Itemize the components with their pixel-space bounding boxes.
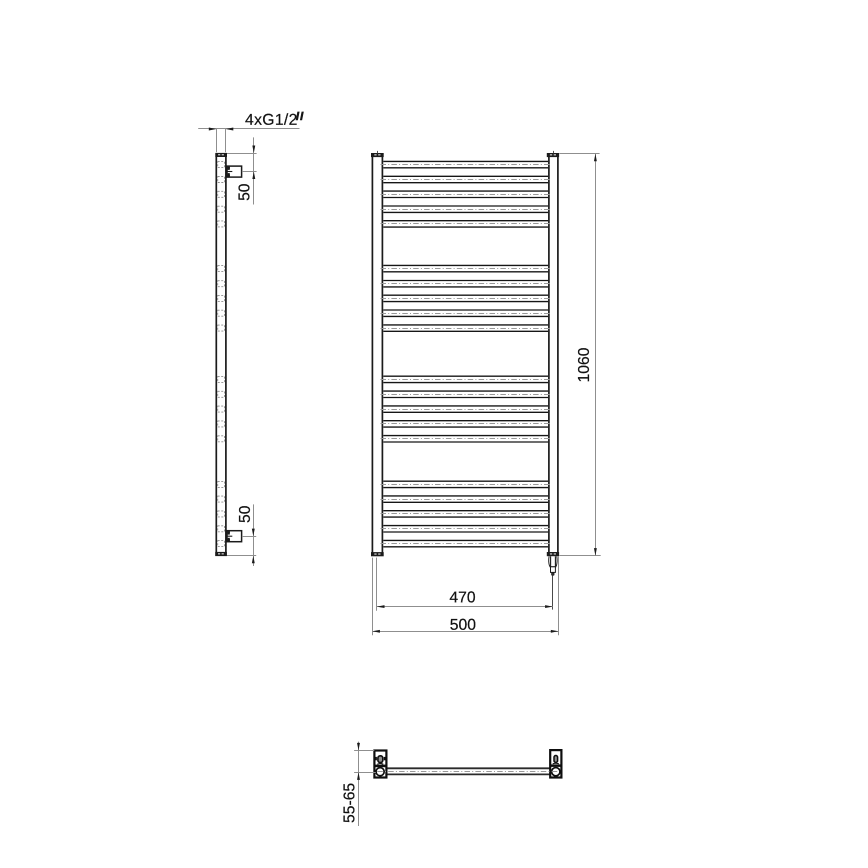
- svg-text:55-65: 55-65: [341, 783, 358, 823]
- svg-text:50: 50: [237, 505, 254, 523]
- svg-text:1060: 1060: [576, 347, 593, 382]
- svg-text:500: 500: [450, 617, 476, 634]
- svg-text:4xG1/2: 4xG1/2: [245, 112, 298, 129]
- svg-text:50: 50: [237, 183, 254, 201]
- svg-text:470: 470: [449, 589, 475, 606]
